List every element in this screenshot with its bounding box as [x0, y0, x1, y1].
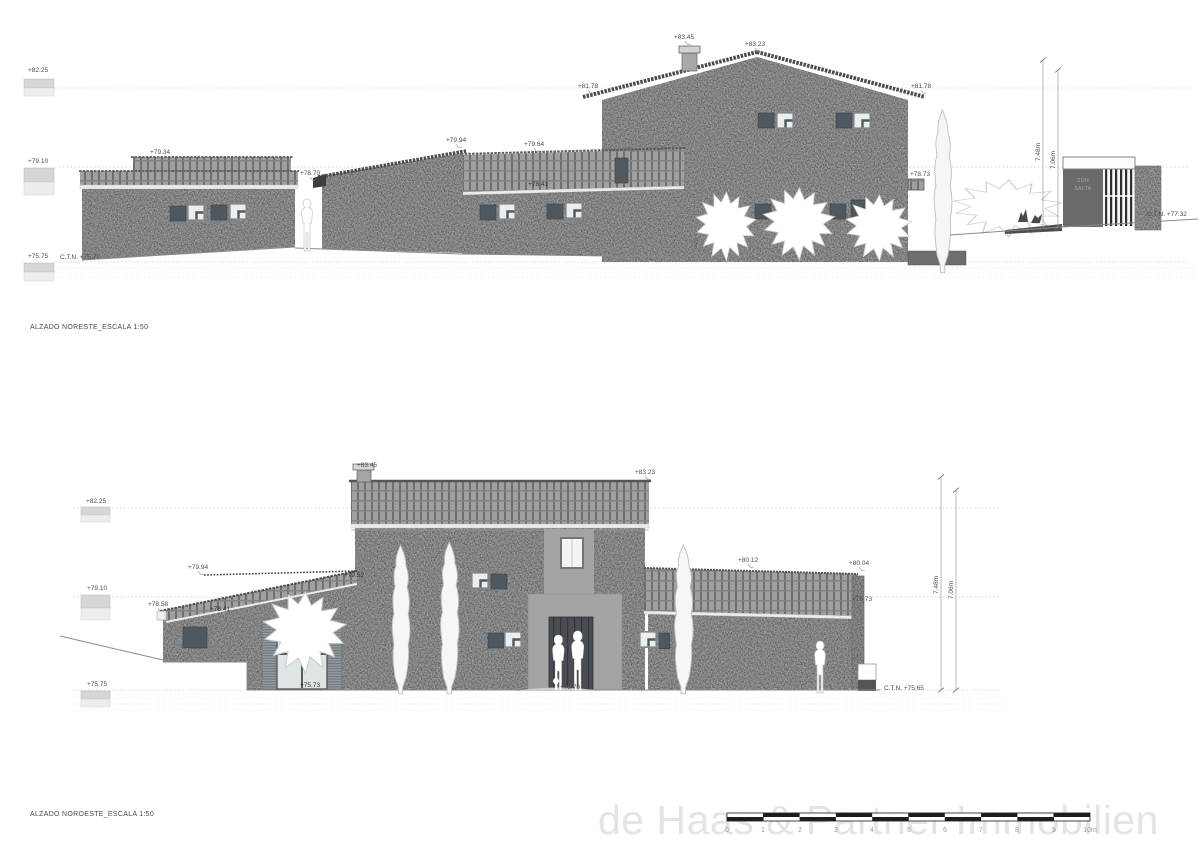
spot-eave-right: +81.78 — [911, 83, 931, 90]
spot-mid-eave: +78.41 — [528, 181, 548, 188]
window — [471, 572, 489, 589]
scale-tick-7: 7 — [979, 827, 983, 834]
scale-tick-1: 1 — [761, 827, 765, 834]
slope-note: 1.1% — [693, 238, 698, 248]
bottom-elevation: 7.48m 7.06m +82.25 +79.10 +75.75 +83.45 … — [30, 462, 1005, 818]
spot-door-sill: +75.70 — [560, 684, 580, 691]
ctn-right-label: C.T.N. +75.65 — [884, 685, 924, 692]
level-marker-7910 — [81, 595, 110, 620]
window — [187, 204, 205, 221]
shed-building — [313, 151, 466, 253]
chimney-cap — [679, 46, 700, 53]
window — [836, 113, 852, 128]
middle-building — [461, 148, 685, 257]
window — [498, 203, 516, 220]
spot-eave-left: +81.78 — [578, 83, 598, 90]
scale-tick-3: 3 — [834, 827, 838, 834]
level-marker-7910 — [24, 168, 54, 195]
ctn-left-label: C.T.N. +75.77 — [60, 254, 100, 261]
spot-wing-eave: +78.73 — [852, 596, 872, 603]
window — [547, 204, 563, 219]
chimney — [357, 469, 371, 482]
spot-chimney: +83.45 — [357, 462, 377, 469]
spot-rear-roof: +79.52 — [344, 572, 364, 579]
spot-porch: +78.73 — [910, 171, 930, 178]
spot-window-sill: +75.73 — [300, 682, 320, 689]
middle-roof — [462, 149, 684, 193]
base-box-dark — [858, 680, 876, 691]
porch-roof-stub — [908, 179, 924, 190]
gate-slats — [1103, 169, 1135, 226]
window — [183, 627, 207, 648]
window — [565, 202, 583, 219]
spot-ridge: +83.23 — [635, 469, 655, 476]
window — [504, 631, 522, 648]
window — [211, 205, 227, 220]
elevation-drawing: 1.1% — [0, 0, 1200, 848]
entrance-gate: SON SALTA — [1063, 166, 1161, 230]
spot-left-roof: +79.34 — [150, 149, 170, 156]
lower-roof — [80, 171, 298, 185]
scale-tick-10: 10m — [1083, 827, 1097, 834]
level-label-7910: +79.10 — [87, 585, 107, 592]
scale-tick-8: 8 — [1015, 827, 1019, 834]
fascia — [80, 185, 298, 189]
middle-wall — [462, 189, 684, 257]
level-marker-7575 — [81, 691, 110, 707]
spot-chimney: +83.45 — [674, 34, 694, 41]
scale-tick-6: 6 — [943, 827, 947, 834]
spot-low-eave: +78.41 — [210, 606, 230, 613]
fascia — [351, 524, 649, 528]
gutter-box — [157, 611, 166, 620]
spot-wing-top: +80.12 — [738, 557, 758, 564]
parapet-line — [204, 571, 357, 575]
scale-tick-5: 5 — [907, 827, 911, 834]
terrain-line — [60, 636, 163, 660]
spot-gap-eave: +78.70 — [300, 170, 320, 177]
level-label-8225: +82.25 — [28, 67, 48, 74]
level-label-7575: +75.75 — [28, 253, 48, 260]
roof-vent — [615, 158, 628, 183]
dim-label-inner: 7.06m — [1050, 151, 1057, 169]
cypress-tree — [675, 545, 693, 694]
window — [229, 203, 247, 220]
spot-left-eave: +78.58 — [148, 601, 168, 608]
spot-parapet: +79.94 — [188, 564, 208, 571]
dimension-lines-bottom: 7.48m 7.06m — [933, 475, 959, 693]
gate-sign-line2: SALTA — [1074, 186, 1091, 192]
scale-bar: 0 1 2 3 4 5 6 7 8 9 10m — [725, 813, 1097, 834]
window — [170, 206, 186, 221]
level-marker-8225 — [24, 79, 54, 96]
main-roof — [351, 481, 649, 524]
bag — [553, 678, 559, 684]
window — [488, 633, 504, 648]
level-marker-8225 — [81, 507, 110, 522]
window — [480, 205, 496, 220]
spot-mid-ridge: +79.64 — [524, 141, 544, 148]
bottom-elevation-title: ALZADO NOROESTE_ESCALA 1:50 — [30, 811, 154, 818]
window — [776, 112, 794, 129]
window — [853, 112, 871, 129]
scale-tick-4: 4 — [870, 827, 874, 834]
window — [491, 574, 507, 589]
upper-roof — [133, 157, 291, 172]
shed-wall — [322, 153, 463, 253]
window — [639, 631, 657, 648]
dim-label-inner: 7.06m — [948, 581, 955, 599]
window — [758, 113, 774, 128]
window — [659, 633, 670, 649]
scale-tick-2: 2 — [798, 827, 802, 834]
scale-tick-0: 0 — [725, 827, 729, 834]
dim-label-outer: 7.48m — [1035, 143, 1042, 161]
top-elevation: 1.1% — [24, 34, 1198, 331]
level-label-8225: +82.25 — [86, 498, 106, 505]
base-box — [858, 664, 876, 680]
level-label-7910: +79.10 — [28, 158, 48, 165]
top-elevation-title: ALZADO NORESTE_ESCALA 1:50 — [30, 324, 148, 331]
gate-lintel — [1063, 157, 1135, 169]
spot-ridge: +83.23 — [745, 41, 765, 48]
ctn-right-label: C.T.N. +77.32 — [1147, 211, 1187, 218]
level-label-7575: +75.75 — [87, 681, 107, 688]
chimney — [682, 53, 697, 71]
scale-tick-9: 9 — [1052, 827, 1056, 834]
level-marker-7575 — [24, 263, 54, 281]
person-silhouette — [302, 199, 313, 251]
spot-wing-end: +80.04 — [849, 560, 869, 567]
gate-pillar — [1135, 166, 1161, 230]
gate-sign-line1: SON — [1077, 178, 1089, 184]
dim-label-outer: 7.48m — [933, 576, 940, 594]
cypress-tree — [934, 110, 952, 273]
spot-shed-top: +79.94 — [446, 137, 466, 144]
